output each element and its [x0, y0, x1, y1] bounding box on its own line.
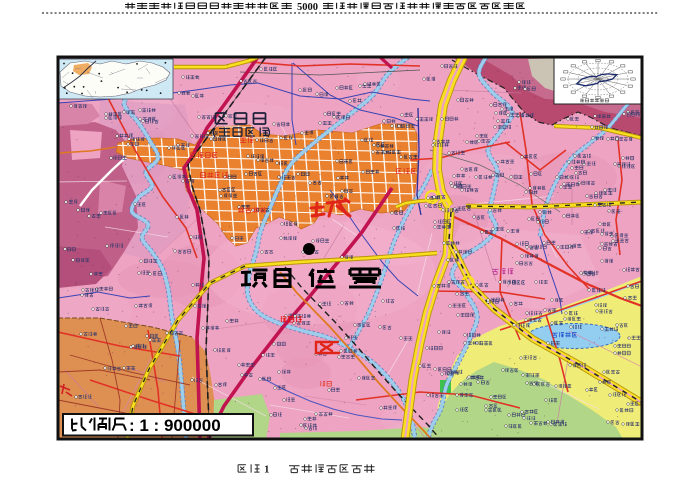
svg-text:1: 1: [264, 464, 270, 476]
svg-text:: 1 : 900000: : 1 : 900000: [129, 416, 221, 435]
svg-text:5000: 5000: [297, 2, 318, 13]
